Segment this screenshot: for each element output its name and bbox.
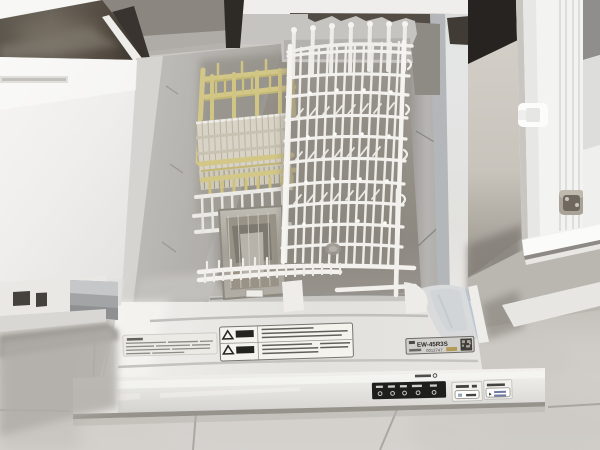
svg-text:0012747: 0012747 xyxy=(426,347,443,353)
